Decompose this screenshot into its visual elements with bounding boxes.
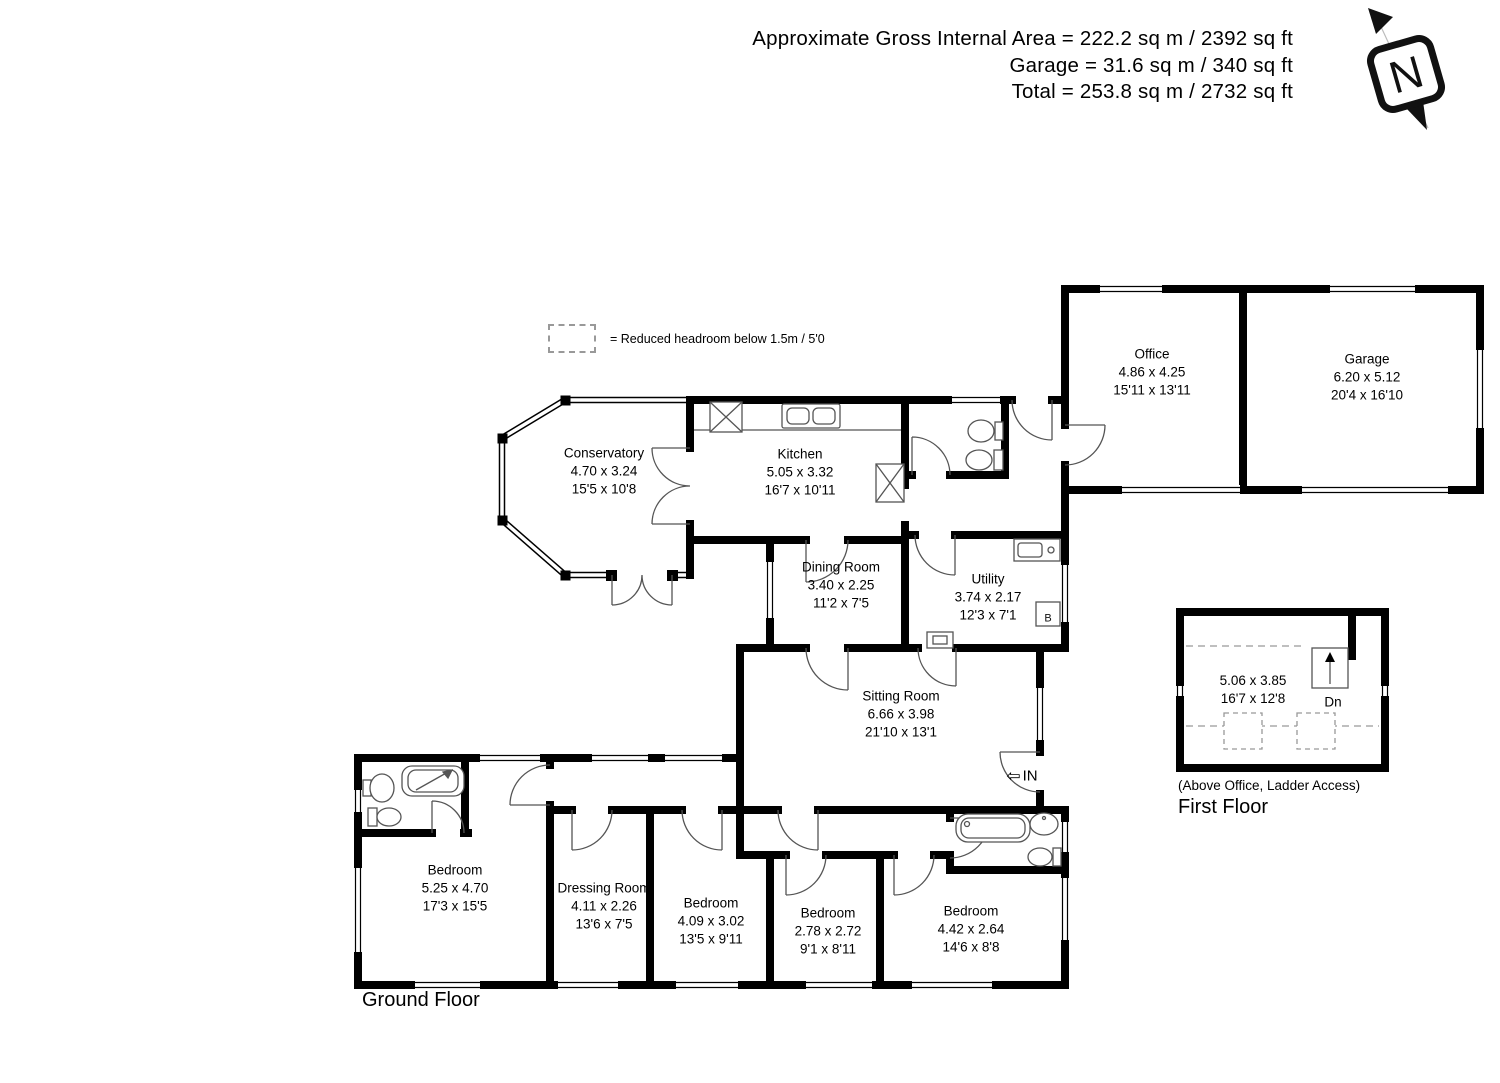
area-summary: Approximate Gross Internal Area = 222.2 … (752, 26, 1293, 106)
floorplan-drawing: N B (0, 0, 1500, 1083)
room-label-office: Office 4.86 x 4.25 15'11 x 13'11 (1113, 345, 1190, 398)
room-dims-imperial: 9'1 x 8'11 (795, 940, 862, 958)
room-dims-metric: 6.66 x 3.98 (862, 705, 939, 723)
room-dims-metric: 4.42 x 2.64 (938, 920, 1005, 938)
reduced-headroom-swatch (548, 324, 596, 353)
utility-sink (1014, 539, 1060, 561)
room-dims-imperial: 14'6 x 8'8 (938, 938, 1005, 956)
room-name: Sitting Room (862, 687, 939, 705)
area-line-total: Total = 253.8 sq m / 2732 sq ft (752, 79, 1293, 106)
room-dims-imperial: 17'3 x 15'5 (422, 897, 489, 915)
room-dims-imperial: 15'5 x 10'8 (564, 480, 644, 498)
room-name: Utility (955, 570, 1022, 588)
room-dims-imperial: 12'3 x 7'1 (955, 606, 1022, 624)
entrance-arrow-icon: ⇦ (1006, 768, 1020, 785)
legend: = Reduced headroom below 1.5m / 5'0 (548, 324, 825, 353)
windows (353, 284, 1485, 990)
room-label-dining-room: Dining Room 3.40 x 2.25 11'2 x 7'5 (802, 558, 880, 611)
ensuite-basin (363, 774, 394, 802)
room-dims-metric: 3.74 x 2.17 (955, 588, 1022, 606)
room-dims-metric: 4.70 x 3.24 (564, 462, 644, 480)
room-label-bedroom-1: Bedroom 5.25 x 4.70 17'3 x 15'5 (422, 861, 489, 914)
room-name: Office (1113, 345, 1190, 363)
ensuite-bath (402, 766, 464, 796)
ladder-hatch (1312, 648, 1348, 688)
area-line-total-internal: Approximate Gross Internal Area = 222.2 … (752, 26, 1293, 53)
boiler-label: B (1044, 612, 1051, 624)
kitchen-stove-box (876, 464, 904, 502)
room-label-conservatory: Conservatory 4.70 x 3.24 15'5 x 10'8 (564, 444, 644, 497)
room-dims-imperial: 20'4 x 16'10 (1331, 386, 1403, 404)
wc-toilet (966, 450, 1003, 470)
bathroom-bath (956, 814, 1030, 842)
room-label-first-floor-room: 5.06 x 3.85 16'7 x 12'8 (1220, 672, 1287, 708)
wc-basin (968, 420, 1003, 442)
room-label-sitting-room: Sitting Room 6.66 x 3.98 21'10 x 13'1 (862, 687, 939, 740)
floorplan-page: N B Approximate Gross Internal Area = 22… (0, 0, 1500, 1083)
room-label-kitchen: Kitchen 5.05 x 3.32 16'7 x 10'11 (765, 445, 836, 498)
room-dims-imperial: 16'7 x 10'11 (765, 481, 836, 499)
room-dims-imperial: 13'5 x 9'11 (678, 930, 745, 948)
room-name: Bedroom (422, 861, 489, 879)
compass: N (1368, 8, 1445, 130)
room-label-dressing-room: Dressing Room 4.11 x 2.26 13'6 x 7'5 (556, 879, 652, 932)
entrance-label: ⇦ IN (1006, 768, 1037, 785)
reduced-headroom-patch (1224, 713, 1262, 749)
room-label-bedroom-4: Bedroom 4.42 x 2.64 14'6 x 8'8 (938, 902, 1005, 955)
kitchen-chimney-box (710, 402, 742, 432)
first-floor-note: (Above Office, Ladder Access) (1178, 778, 1360, 793)
ground-floor-title: Ground Floor (362, 989, 480, 1012)
entrance-text: IN (1023, 768, 1038, 785)
room-name: Dining Room (802, 558, 880, 576)
room-name: Garage (1331, 350, 1403, 368)
room-dims-metric: 4.86 x 4.25 (1113, 363, 1190, 381)
first-floor-title: First Floor (1178, 796, 1268, 819)
room-name: Bedroom (678, 894, 745, 912)
room-name: Conservatory (564, 444, 644, 462)
ensuite-toilet (368, 808, 401, 826)
room-dims-imperial: 21'10 x 13'1 (862, 723, 939, 741)
room-name: Bedroom (795, 904, 862, 922)
room-label-bedroom-2: Bedroom 4.09 x 3.02 13'5 x 9'11 (678, 894, 745, 947)
room-dims-imperial: 15'11 x 13'11 (1113, 381, 1190, 399)
sitting-room-stove (927, 632, 953, 648)
room-dims-metric: 5.05 x 3.32 (765, 463, 836, 481)
room-dims-metric: 5.06 x 3.85 (1220, 672, 1287, 690)
compass-north-arrowhead (1368, 8, 1393, 34)
room-dims-metric: 4.09 x 3.02 (678, 912, 745, 930)
room-name: Dressing Room (556, 879, 652, 897)
room-name: Bedroom (938, 902, 1005, 920)
room-dims-metric: 4.11 x 2.26 (556, 897, 652, 915)
room-dims-metric: 2.78 x 2.72 (795, 922, 862, 940)
room-dims-imperial: 16'7 x 12'8 (1220, 690, 1287, 708)
bathroom-basin (1030, 813, 1058, 835)
reduced-headroom-patch (1297, 713, 1335, 749)
room-dims-metric: 6.20 x 5.12 (1331, 368, 1403, 386)
room-label-utility: Utility 3.74 x 2.17 12'3 x 7'1 (955, 570, 1022, 623)
room-dims-imperial: 11'2 x 7'5 (802, 594, 880, 612)
room-dims-metric: 5.25 x 4.70 (422, 879, 489, 897)
stair-down-label: Dn (1324, 695, 1341, 710)
legend-text: = Reduced headroom below 1.5m / 5'0 (610, 332, 825, 346)
exterior-walls (358, 289, 1480, 985)
room-label-bedroom-3: Bedroom 2.78 x 2.72 9'1 x 8'11 (795, 904, 862, 957)
room-name: Kitchen (765, 445, 836, 463)
room-dims-metric: 3.40 x 2.25 (802, 576, 880, 594)
bathroom-toilet (1028, 848, 1061, 866)
area-line-garage: Garage = 31.6 sq m / 340 sq ft (752, 53, 1293, 80)
room-dims-imperial: 13'6 x 7'5 (556, 915, 652, 933)
room-label-garage: Garage 6.20 x 5.12 20'4 x 16'10 (1331, 350, 1403, 403)
